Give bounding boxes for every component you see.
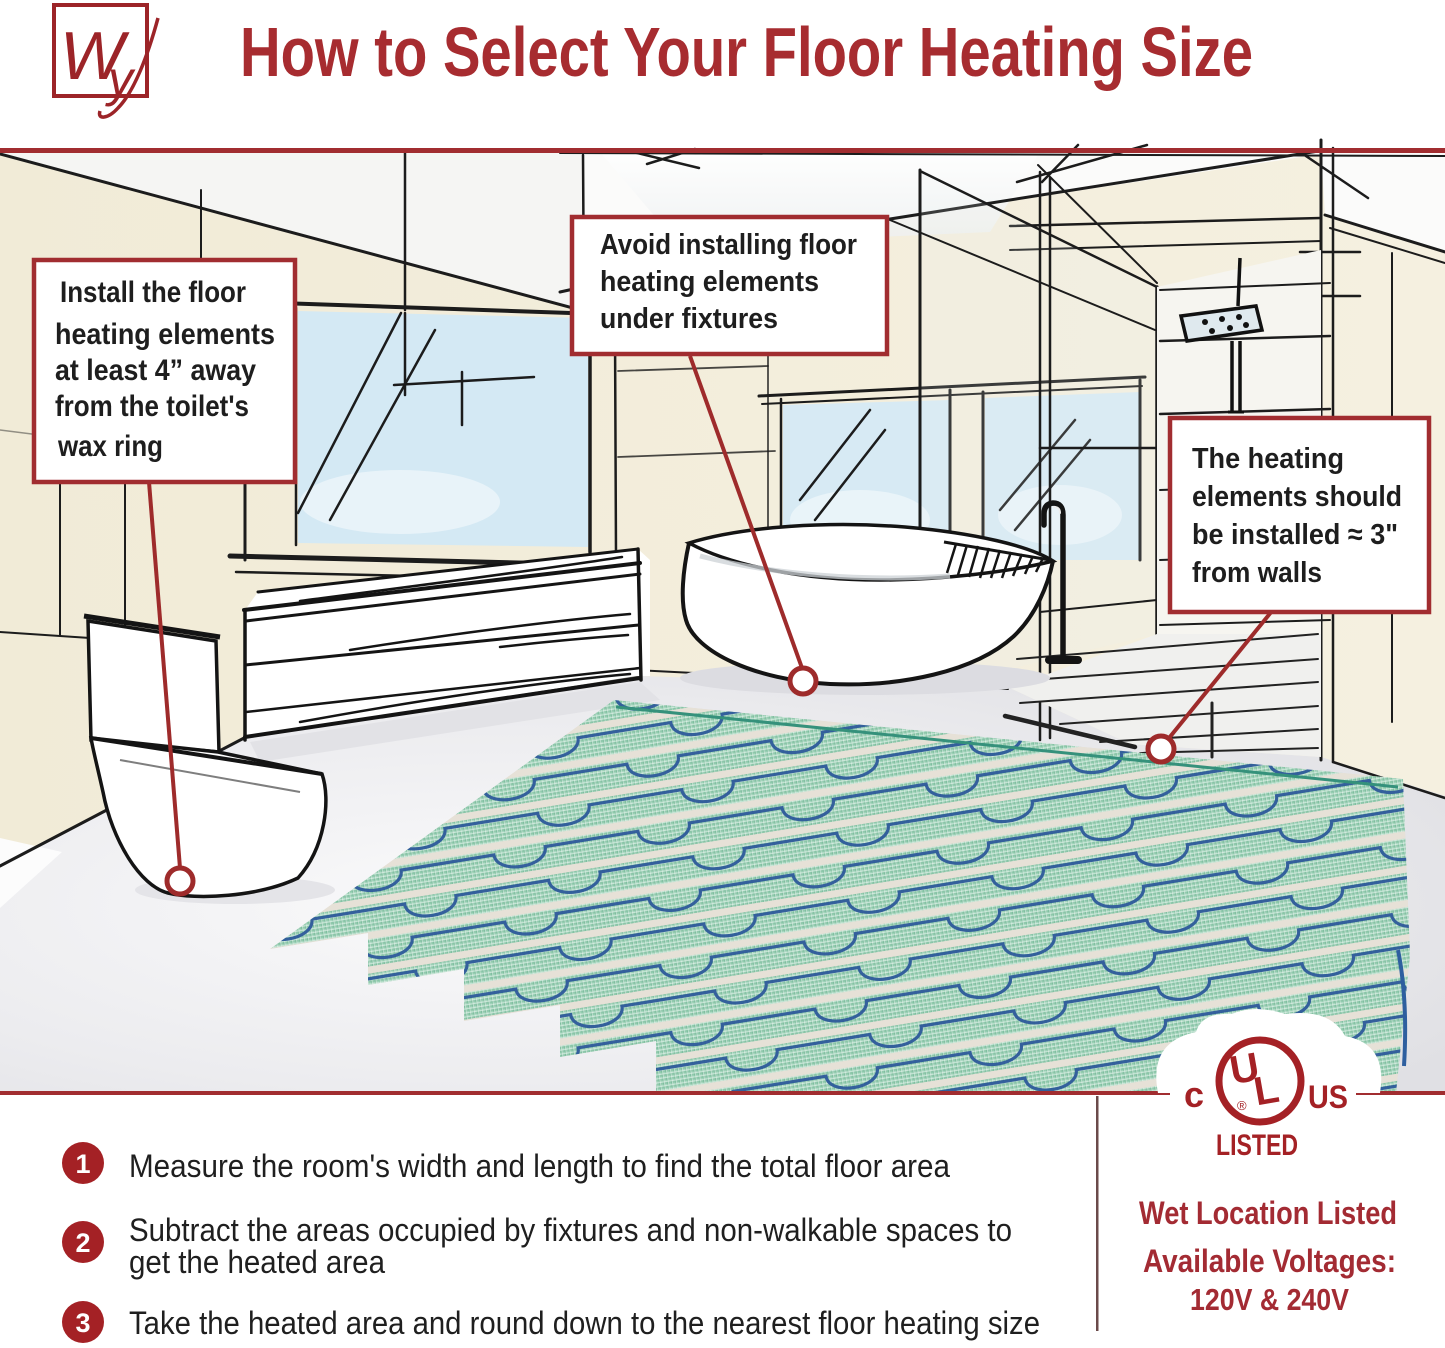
svg-text:Take the heated area and round: Take the heated area and round down to t… xyxy=(129,1305,1040,1341)
svg-text:y: y xyxy=(105,51,136,107)
svg-text:heating elements: heating elements xyxy=(600,266,819,298)
svg-text:Avoid installing floor: Avoid installing floor xyxy=(600,229,857,261)
svg-text:How to Select Your Floor Heati: How to Select Your Floor Heating Size xyxy=(240,13,1253,91)
svg-text:elements should: elements should xyxy=(1192,481,1402,513)
svg-text:1: 1 xyxy=(75,1149,90,1179)
svg-text:under fixtures: under fixtures xyxy=(600,303,778,335)
svg-text:Install the floor: Install the floor xyxy=(60,276,246,309)
svg-text:from the toilet's: from the toilet's xyxy=(55,390,249,423)
svg-text:from walls: from walls xyxy=(1192,557,1322,589)
svg-text:US: US xyxy=(1308,1079,1348,1115)
svg-text:Subtract the areas occupied by: Subtract the areas occupied by fixtures … xyxy=(129,1212,1012,1248)
svg-text:LISTED: LISTED xyxy=(1216,1129,1298,1162)
svg-text:at least 4” away: at least 4” away xyxy=(55,354,256,387)
svg-text:get the heated area: get the heated area xyxy=(129,1244,385,1280)
svg-text:be installed ≈ 3": be installed ≈ 3" xyxy=(1192,519,1398,551)
svg-text:The heating: The heating xyxy=(1192,443,1344,475)
svg-text:120V & 240V: 120V & 240V xyxy=(1190,1282,1349,1317)
svg-text:Available Voltages:: Available Voltages: xyxy=(1143,1243,1396,1279)
svg-text:wax ring: wax ring xyxy=(57,430,163,463)
svg-text:Wet Location Listed: Wet Location Listed xyxy=(1139,1195,1397,1231)
svg-text:®: ® xyxy=(1237,1098,1247,1113)
svg-text:Measure the room's width and l: Measure the room's width and length to f… xyxy=(129,1148,950,1184)
svg-text:c: c xyxy=(1184,1074,1204,1115)
svg-text:2: 2 xyxy=(75,1228,90,1258)
svg-text:3: 3 xyxy=(75,1308,90,1338)
svg-text:heating elements: heating elements xyxy=(55,318,275,351)
